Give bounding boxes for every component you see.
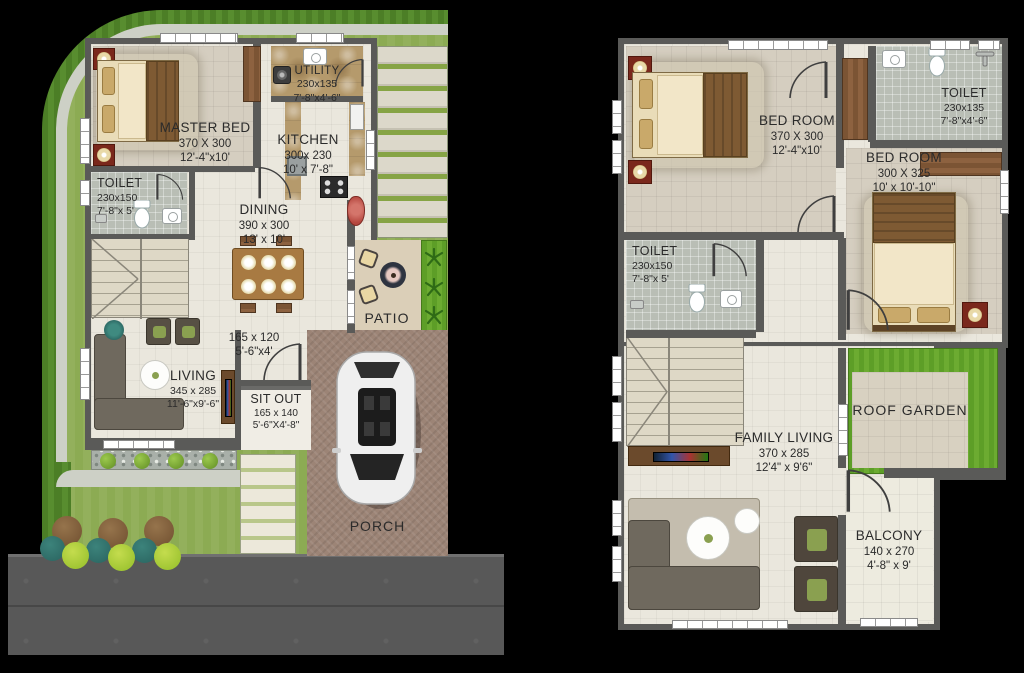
nightstand <box>962 302 988 328</box>
wardrobe <box>243 46 261 102</box>
armchair <box>794 516 838 562</box>
window <box>1000 170 1009 214</box>
table-decor <box>704 534 713 543</box>
wall <box>756 240 764 332</box>
cushion <box>807 579 827 601</box>
plate <box>241 279 256 294</box>
passage-size-label: 165 x 120 5'-6"x4' <box>212 331 296 360</box>
bush-icon <box>132 538 157 563</box>
shrub-icon <box>168 453 184 469</box>
family-living-label: FAMILY LIVING 370 x 285 12'4" x 9'6" <box>712 430 856 476</box>
palm-plant-icon <box>424 248 444 268</box>
shrub-icon <box>202 453 218 469</box>
bed-sheet <box>657 75 703 155</box>
wash-basin <box>882 50 906 68</box>
door-arc <box>846 288 890 332</box>
table-dot <box>391 273 396 278</box>
bed-room-2-label: BED ROOM 300 X 325 10' x 10'-10" <box>845 150 963 196</box>
wall <box>838 238 846 340</box>
coffee-table <box>686 516 730 560</box>
door-arc <box>796 194 836 234</box>
window <box>978 40 1000 50</box>
plate <box>261 255 276 270</box>
wall <box>870 140 1002 148</box>
shrub-icon <box>100 453 116 469</box>
plate <box>241 255 256 270</box>
armchair <box>175 318 200 345</box>
bush-icon <box>62 542 89 569</box>
shower-tap-icon <box>630 300 644 309</box>
lamp-icon <box>633 165 647 179</box>
toilet-wc-icon <box>928 48 946 78</box>
window <box>612 402 622 442</box>
toilet-mid-label: TOILET 230x150 7'-8"x 5' <box>632 244 712 286</box>
wash-basin-red <box>347 196 365 226</box>
street-planting <box>40 516 190 572</box>
toilet-wc-icon <box>688 284 706 314</box>
porch-label: PORCH <box>340 518 415 536</box>
wall <box>91 166 255 172</box>
lamp-icon <box>968 308 982 322</box>
side-table <box>734 508 760 534</box>
bed-room-1-label: BED ROOM 370 X 300 12'-4"x10' <box>737 113 857 159</box>
window <box>612 356 622 396</box>
bed-sheet <box>118 63 146 139</box>
window <box>160 33 238 43</box>
palm-plant-icon <box>424 306 444 326</box>
patio-table <box>380 262 406 288</box>
cushion <box>153 326 166 338</box>
window <box>80 348 90 400</box>
dining-label: DINING 390 x 300 13' x 10' <box>222 202 306 248</box>
window <box>930 40 970 50</box>
armchair <box>794 566 838 612</box>
window <box>612 140 622 174</box>
sit-out-label: SIT OUT 165 x 140 5'-6"X4'-8" <box>241 392 311 433</box>
window <box>103 440 175 449</box>
toilet-label: TOILET 230x150 7'-8"x 5' <box>97 176 167 218</box>
pillow <box>639 119 653 149</box>
pillow <box>102 67 115 95</box>
roof-garden-deck <box>852 372 968 468</box>
dining-chair <box>240 303 256 313</box>
window <box>347 246 355 280</box>
balcony-label: BALCONY 140 x 270 4'-8" x 9' <box>843 528 935 574</box>
wall <box>91 234 189 239</box>
palm-plant-icon <box>424 278 444 298</box>
sofa-l-shaped <box>628 566 760 610</box>
window <box>612 500 622 536</box>
kitchen-label: KITCHEN 300x 230 10' x 7'-8" <box>266 132 350 178</box>
bed <box>632 72 748 158</box>
window <box>80 118 90 164</box>
lamp-icon <box>97 148 111 162</box>
window <box>612 546 622 582</box>
dining-chair <box>276 303 292 313</box>
nightstand <box>93 144 115 166</box>
wall <box>868 46 876 142</box>
window <box>672 620 788 629</box>
door-arc <box>712 242 748 278</box>
fridge-icon <box>350 104 364 130</box>
shrub-icon <box>134 453 150 469</box>
plate <box>281 279 296 294</box>
nightstand <box>628 160 652 184</box>
plate <box>281 255 296 270</box>
utility-label: UTILITY 230x135 7'-8"x4'-6" <box>275 64 359 105</box>
bed-blanket <box>873 193 955 243</box>
wall <box>626 330 756 338</box>
cushion <box>807 529 827 551</box>
pillow <box>917 307 950 323</box>
patio-label: PATIO <box>352 310 422 328</box>
door-arc <box>788 60 828 100</box>
window <box>612 100 622 134</box>
utility-sink <box>303 48 327 65</box>
bush-icon <box>154 543 181 570</box>
window <box>366 130 375 170</box>
stair-lines <box>92 239 190 319</box>
wall <box>884 468 1006 478</box>
pillow <box>639 79 653 109</box>
plant-icon <box>104 320 124 340</box>
bush-icon <box>108 544 135 571</box>
wall <box>189 166 195 240</box>
entry-steps <box>240 454 296 554</box>
cushion <box>182 326 195 338</box>
roof-garden-label: ROOF GARDEN <box>852 402 968 420</box>
stove-icon <box>320 176 348 198</box>
window <box>80 180 90 206</box>
car-icon <box>332 348 422 510</box>
pillow <box>102 105 115 133</box>
window <box>860 618 918 627</box>
window <box>728 40 828 50</box>
gravel-planter-bed <box>91 450 237 470</box>
armchair <box>146 318 171 345</box>
tv-icon <box>653 452 709 462</box>
toilet-top-label: TOILET 230x135 7'-8"x4'-6" <box>922 86 1006 128</box>
shower-icon <box>974 50 996 68</box>
master-bed-label: MASTER BED 370 X 300 12'-4"x10' <box>145 120 265 166</box>
floor-plan-image: MASTER BED 370 X 300 12'-4"x10' UTILITY … <box>0 0 1024 673</box>
staircase <box>91 238 189 318</box>
dining-set <box>228 236 308 314</box>
plate <box>261 279 276 294</box>
window <box>296 33 344 43</box>
dining-table <box>232 248 304 300</box>
wash-basin <box>720 290 742 308</box>
living-label: LIVING 345 x 285 11'-6"x9'-6" <box>148 368 238 411</box>
